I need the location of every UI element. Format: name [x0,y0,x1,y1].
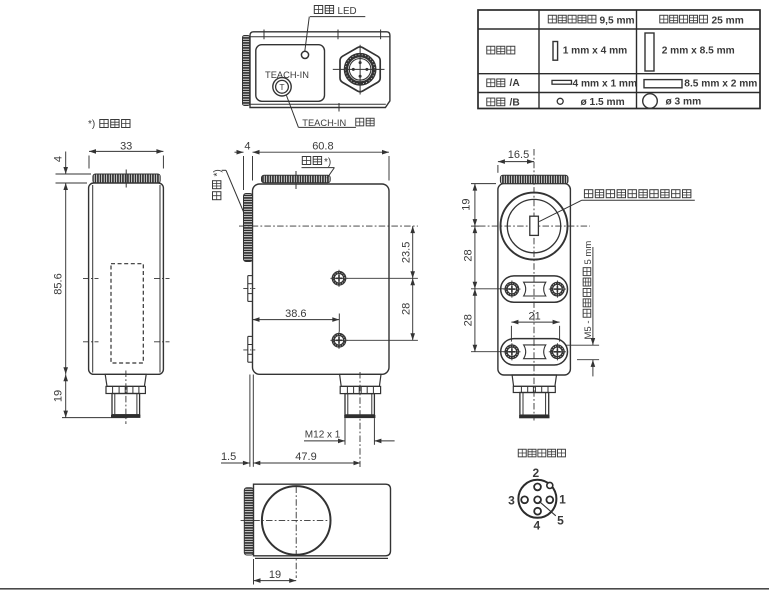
svg-text:1.5: 1.5 [221,451,236,463]
svg-text:25 mm: 25 mm [712,16,744,27]
svg-text:19: 19 [269,569,281,581]
svg-text:4: 4 [244,140,250,152]
svg-text:33: 33 [120,140,132,152]
svg-text:60.8: 60.8 [312,140,333,152]
svg-text:21: 21 [528,310,540,322]
svg-text:M12 x 1: M12 x 1 [305,429,341,440]
svg-text:M5 -: M5 - [583,321,594,340]
svg-text:85.6: 85.6 [53,273,65,294]
svg-text:8.5 mm x 2 mm: 8.5 mm x 2 mm [684,79,757,90]
svg-text:LED: LED [338,6,357,17]
svg-text:47.9: 47.9 [295,451,316,463]
svg-text:23.5: 23.5 [400,242,412,263]
svg-text:2: 2 [532,466,539,480]
svg-text:28: 28 [462,249,474,261]
svg-text:T: T [279,82,284,92]
svg-text:1: 1 [559,492,566,506]
svg-text:4: 4 [533,518,540,532]
svg-text:/B: /B [510,97,520,108]
svg-text:38.6: 38.6 [285,308,306,320]
svg-text:4: 4 [53,156,65,162]
svg-text:/A: /A [510,78,521,89]
svg-text:4 mm x 1 mm: 4 mm x 1 mm [573,79,638,90]
svg-text:*): *) [88,119,95,130]
svg-text:28: 28 [462,314,474,326]
svg-text:*): *) [324,157,331,168]
svg-text:9,5 mm: 9,5 mm [600,16,635,27]
svg-text:2 mm x 8.5 mm: 2 mm x 8.5 mm [662,45,735,56]
svg-text:19: 19 [461,198,473,210]
svg-text:ø 1.5 mm: ø 1.5 mm [581,97,625,108]
svg-text:28: 28 [400,303,412,315]
svg-text:1 mm x 4 mm: 1 mm x 4 mm [563,46,628,57]
svg-text:19: 19 [53,390,65,402]
svg-text:ø 3 mm: ø 3 mm [666,97,702,108]
svg-text:5: 5 [557,513,564,527]
svg-text:16.5: 16.5 [508,149,529,161]
svg-text:3: 3 [508,493,515,507]
svg-text:TEACH-IN: TEACH-IN [302,118,346,128]
svg-text:5 mm: 5 mm [583,241,594,265]
